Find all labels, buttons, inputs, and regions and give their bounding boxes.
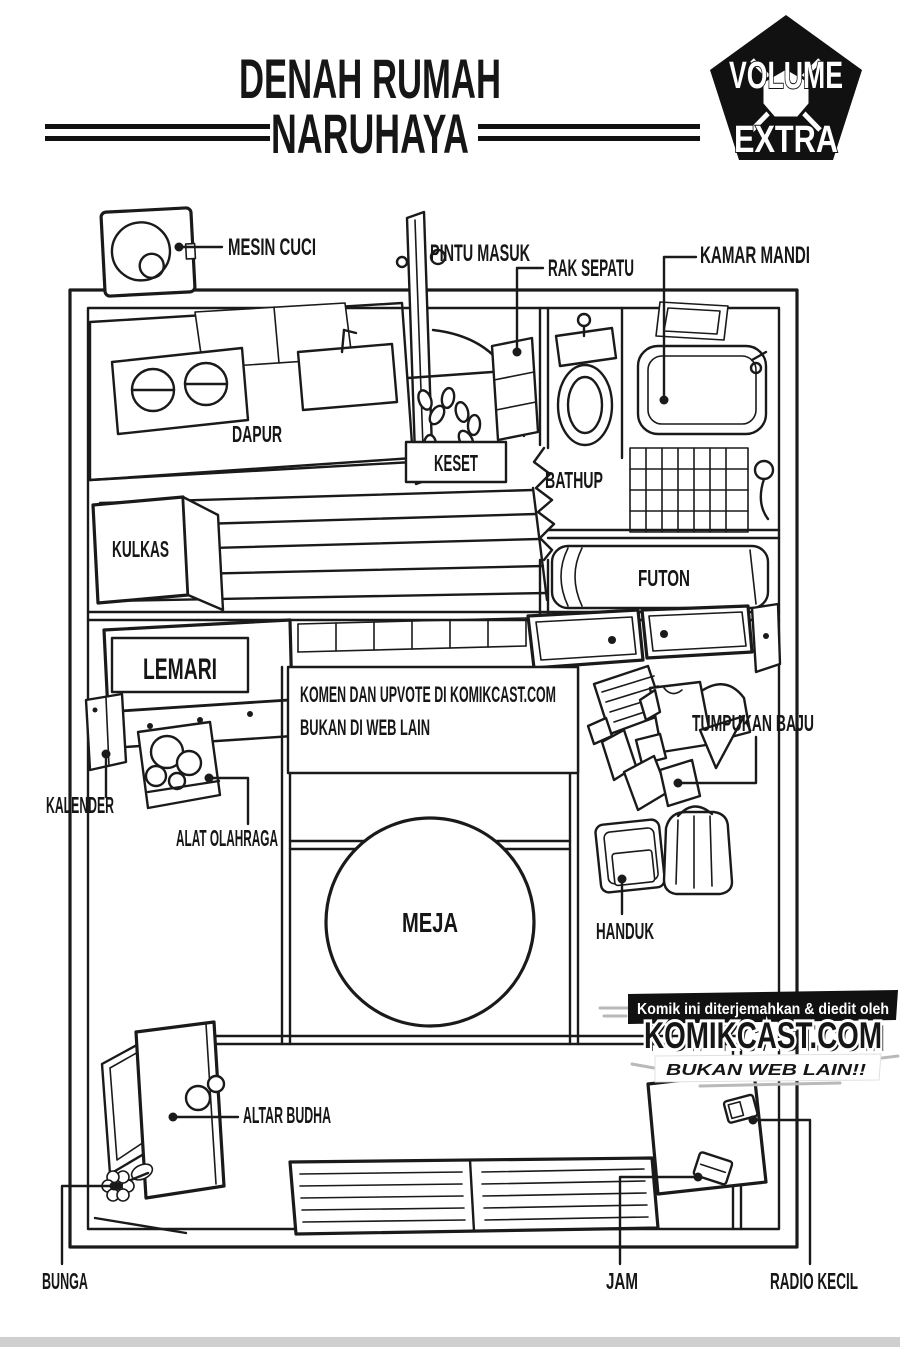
label-pintu-masuk: PINTU MASUK: [430, 240, 530, 267]
title-rule-right-bottom: [478, 136, 700, 141]
bag-drawing: [664, 806, 732, 894]
label-bunga: BUNGA: [42, 1268, 88, 1294]
manga-floorplan-page: DENAH RUMAH NARUHAYA VOLUME EXTRA: [0, 0, 900, 1347]
label-jam: JAM: [606, 1268, 638, 1294]
page-bottom-strip: [0, 1337, 900, 1347]
label-altar-budha: ALTAR BUDHA: [243, 1102, 331, 1128]
towel-drawing: [595, 819, 666, 893]
watermark-line2: BUKAN DI WEB LAIN: [300, 715, 430, 740]
label-meja: MEJA: [402, 907, 458, 938]
side-table-drawing: [648, 1072, 766, 1194]
label-bathup: BATHUP: [545, 467, 603, 493]
page-title-line1: DENAH RUMAH: [239, 47, 501, 110]
bath-tile-floor: [630, 448, 748, 532]
label-kamar-mandi: KAMAR MANDI: [700, 242, 810, 269]
label-keset: KESET: [434, 450, 478, 476]
badge-bottom-text: EXTRA: [734, 119, 838, 161]
label-radio-kecil: RADIO KECIL: [770, 1268, 858, 1294]
label-tumpukan-baju: TUMPUKAN BAJU: [692, 710, 814, 736]
sports-equipment-drawing: [138, 722, 220, 808]
page-title-line2: NARUHAYA: [271, 102, 469, 165]
title-rule-right-top: [478, 124, 700, 129]
label-handuk: HANDUK: [596, 918, 654, 944]
label-alat-olahraga: ALAT OLAHRAGA: [176, 825, 278, 851]
label-kulkas: KULKAS: [112, 536, 169, 562]
tatami-mats-drawing: [290, 1158, 658, 1234]
label-mesin-cuci: MESIN CUCI: [228, 234, 316, 261]
label-dapur: DAPUR: [232, 421, 282, 447]
title-rule-left-top: [45, 124, 270, 129]
logo-site-text: KOMIKCAST.COM: [644, 1015, 882, 1056]
title-rule-left-bottom: [45, 136, 270, 141]
logo-slogan-text: BUKAN WEB LAIN!!: [666, 1062, 867, 1079]
washing-machine-drawing: [101, 208, 197, 297]
label-kalender: KALENDER: [46, 792, 114, 818]
label-futon: FUTON: [638, 565, 690, 591]
label-lemari: LEMARI: [143, 653, 217, 686]
label-rak-sepatu: RAK SEPATU: [548, 255, 634, 282]
bathtub-drawing: [638, 346, 766, 434]
watermark-line1: KOMEN DAN UPVOTE DI KOMIKCAST.COM: [300, 682, 556, 707]
badge-top-text: VOLUME: [729, 55, 843, 97]
